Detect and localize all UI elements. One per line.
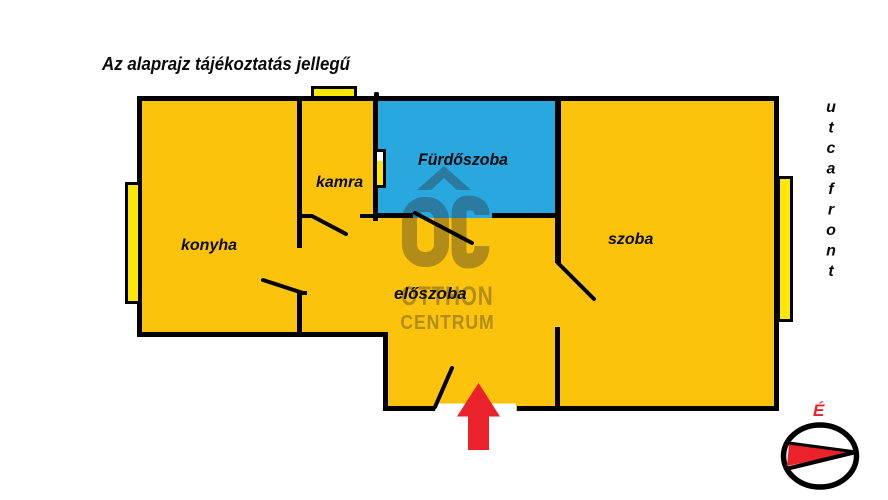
svg-text:előszoba: előszoba xyxy=(394,284,467,303)
svg-text:Fürdőszoba: Fürdőszoba xyxy=(418,150,508,169)
svg-text:n: n xyxy=(826,243,836,260)
svg-text:konyha: konyha xyxy=(181,237,237,254)
svg-text:CENTRUM: CENTRUM xyxy=(400,311,494,333)
svg-text:u: u xyxy=(826,99,836,116)
svg-text:É: É xyxy=(813,401,825,420)
svg-text:Az alaprajz tájékoztatás jelle: Az alaprajz tájékoztatás jellegű xyxy=(101,54,351,74)
svg-text:o: o xyxy=(826,222,836,239)
svg-text:szoba: szoba xyxy=(608,231,653,248)
svg-text:t: t xyxy=(828,263,834,280)
svg-text:c: c xyxy=(827,140,836,157)
svg-text:r: r xyxy=(828,202,835,219)
svg-text:a: a xyxy=(827,161,836,178)
svg-text:t: t xyxy=(828,120,834,137)
svg-text:f: f xyxy=(828,181,835,198)
svg-text:kamra: kamra xyxy=(316,174,363,191)
